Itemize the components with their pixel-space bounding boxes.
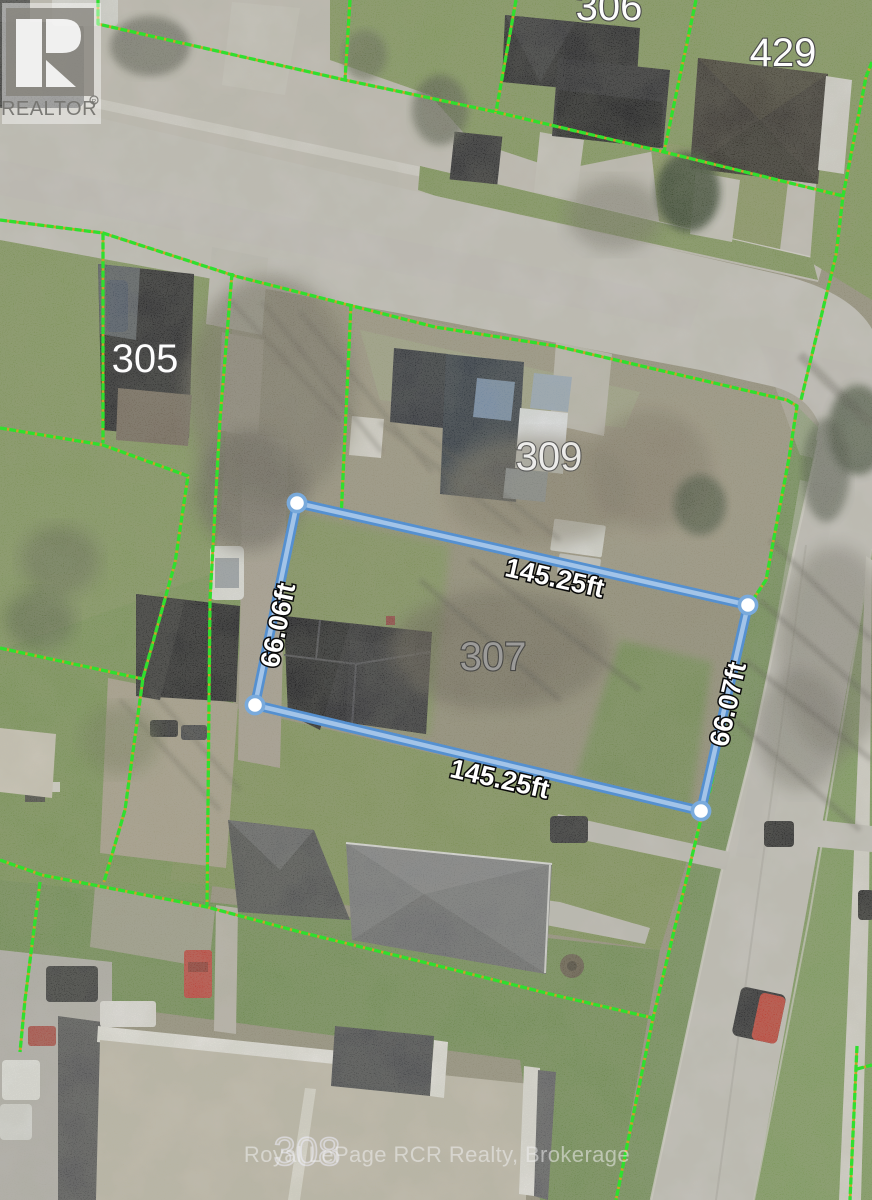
svg-text:306: 306 <box>576 0 643 29</box>
svg-text:Royal LePage RCR Realty, Broke: Royal LePage RCR Realty, Brokerage <box>244 1142 630 1167</box>
svg-text:305: 305 <box>112 337 179 381</box>
svg-text:307: 307 <box>460 635 527 679</box>
svg-text:R: R <box>92 99 97 106</box>
svg-text:309: 309 <box>516 435 583 479</box>
svg-text:429: 429 <box>750 31 817 75</box>
svg-text:REALTOR: REALTOR <box>1 98 97 120</box>
